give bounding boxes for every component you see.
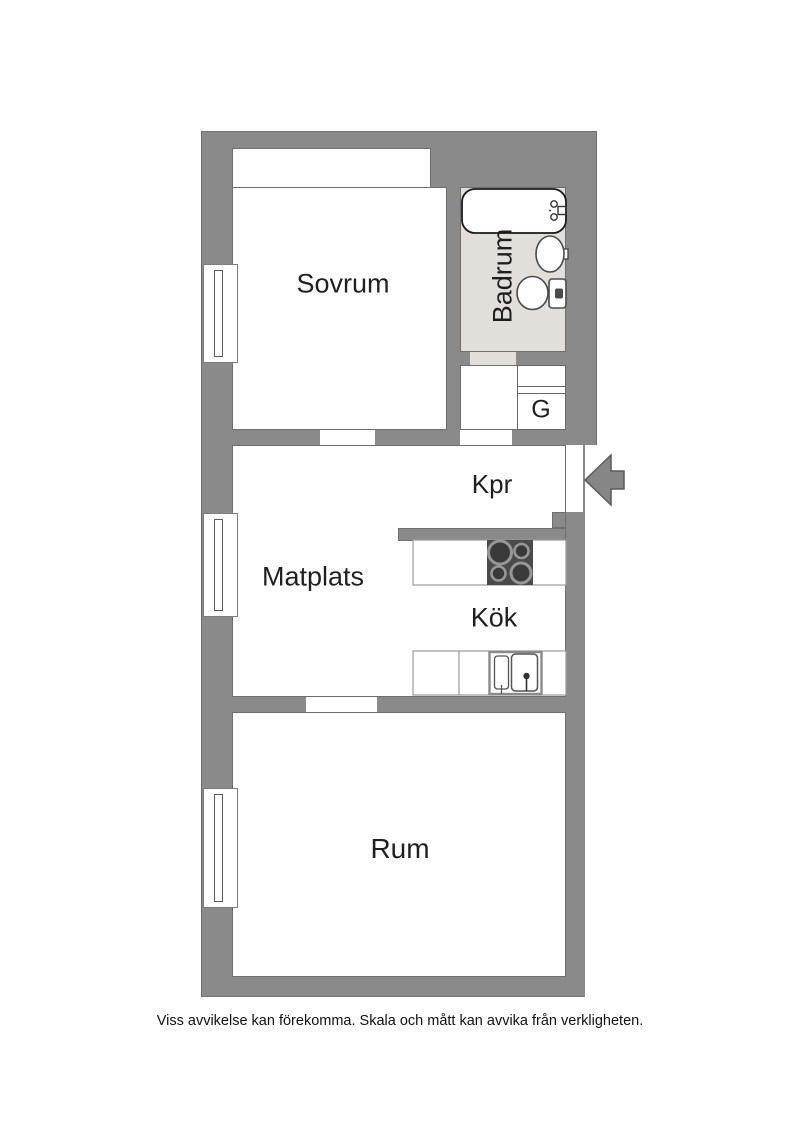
window-pane-icon: [214, 519, 223, 611]
sovrum-door-opening: [320, 430, 375, 445]
window-pane-icon: [214, 794, 223, 902]
wall-kok-top: [398, 528, 566, 541]
wall-entry-jamb: [552, 512, 566, 528]
rum-door-opening: [306, 697, 377, 712]
label-kok: Kök: [471, 605, 518, 632]
label-badrum: Badrum: [490, 229, 517, 324]
label-kpr: Kpr: [472, 471, 512, 497]
closet-shelf-line: [518, 386, 565, 394]
window-1: [203, 264, 238, 363]
room-sovrum-floor-lower: [232, 187, 447, 430]
badrum-door-opening: [470, 352, 516, 365]
label-matplats: Matplats: [262, 564, 364, 591]
label-garderob: G: [531, 398, 550, 423]
exterior-right: [585, 445, 800, 997]
entry-door-threshold-line: [583, 445, 585, 512]
window-2: [203, 513, 238, 617]
window-pane-icon: [214, 270, 223, 357]
label-rum: Rum: [370, 835, 429, 863]
disclaimer-text: Viss avvikelse kan förekomma. Skala och …: [0, 1013, 800, 1029]
label-sovrum: Sovrum: [296, 271, 389, 298]
entry-door-opening: [566, 445, 597, 512]
floor-plan: Sovrum Badrum G Kpr Matplats Kök Rum Vis…: [0, 0, 800, 1131]
window-3: [203, 788, 238, 908]
hall-passage: [460, 430, 512, 446]
